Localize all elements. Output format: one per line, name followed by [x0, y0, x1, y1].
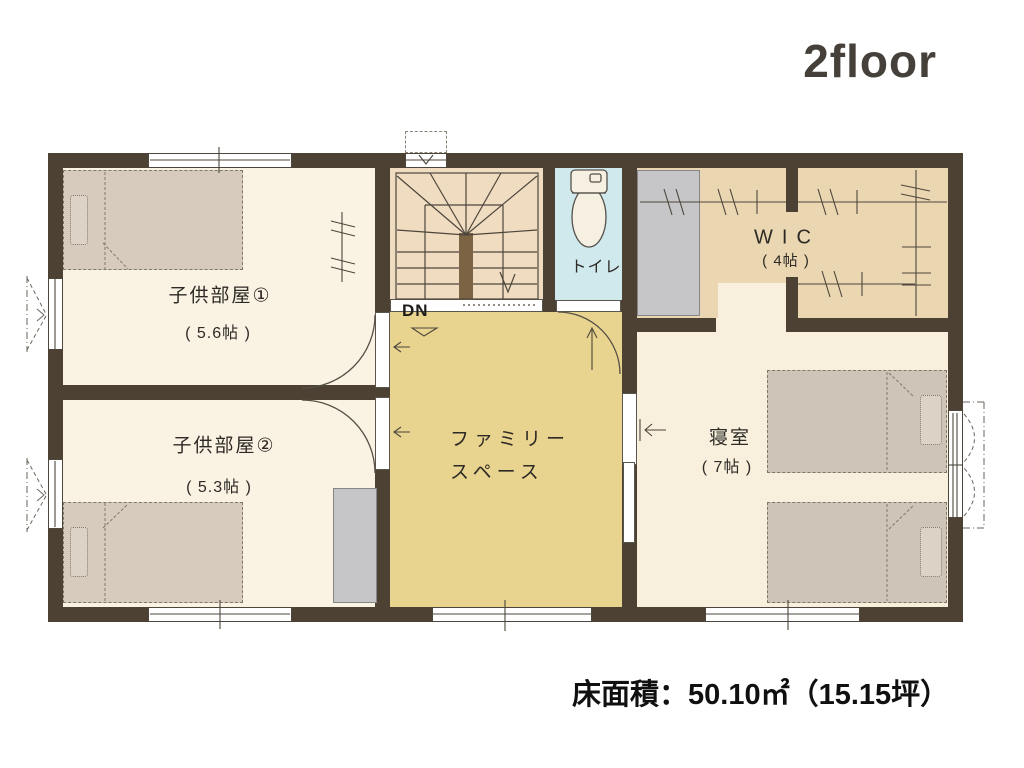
wic-divider-wall-bottom — [786, 277, 798, 318]
child-room-1-top-window — [148, 153, 292, 168]
child-room-1-pillow — [70, 195, 88, 245]
stairs-top-window — [405, 153, 447, 168]
toilet-door-opening — [556, 300, 621, 312]
bedroom-right-window — [948, 410, 963, 518]
child-room-2-left-window — [48, 459, 63, 529]
floor-plan-page: 2floor — [0, 0, 1024, 768]
bedroom-bed-2-pillow — [920, 527, 942, 577]
family-space-label-line2: スペース — [450, 456, 570, 489]
child-room-2-label: 子供部屋② — [172, 431, 275, 458]
child-room-1-left-window — [48, 278, 63, 350]
child-room-2-door-opening — [375, 397, 390, 470]
child-room-1-size: ( 5.6帖 ) — [185, 319, 251, 343]
wic-label: WIC — [754, 227, 820, 250]
wic-size: ( 4帖 ) — [762, 250, 810, 271]
family-space-bottom-window — [432, 607, 592, 622]
child-room-1-label: 子供部屋① — [168, 281, 271, 308]
wic-closet-unit — [637, 170, 700, 316]
bedroom-slider-panel — [623, 462, 635, 543]
child-room-2-closet — [333, 488, 377, 603]
child-room-2-size: ( 5.3帖 ) — [186, 473, 252, 497]
bedroom-label: 寝室 — [709, 423, 751, 450]
wic-doorway — [716, 318, 786, 332]
child-room-2-bottom-window — [148, 607, 292, 622]
toilet-label: トイレ — [570, 253, 621, 277]
bedroom-bottom-window — [705, 607, 860, 622]
stairs-dn-label: DN — [402, 301, 429, 321]
bedroom-bed-1-pillow — [920, 395, 942, 445]
room-toilet — [555, 168, 622, 300]
child-room-1-door-opening — [375, 312, 390, 388]
family-space-label: ファミリー スペース — [450, 423, 570, 489]
bedroom-size: ( 7帖 ) — [702, 453, 752, 477]
page-title: 2floor — [637, 34, 937, 88]
family-space-label-line1: ファミリー — [450, 423, 570, 456]
child-room-1-bed — [63, 170, 243, 270]
room-stairs — [390, 168, 543, 302]
child-room-2-pillow — [70, 527, 88, 577]
stairs-window-outer-dash — [405, 131, 447, 153]
floor-area-summary: 床面積：50.10㎡（15.15坪） — [572, 671, 949, 713]
wic-walkway — [718, 283, 786, 318]
bedroom-slider-opening — [622, 393, 637, 465]
wic-divider-wall-top — [786, 168, 798, 212]
child-room-2-bed — [63, 502, 243, 603]
